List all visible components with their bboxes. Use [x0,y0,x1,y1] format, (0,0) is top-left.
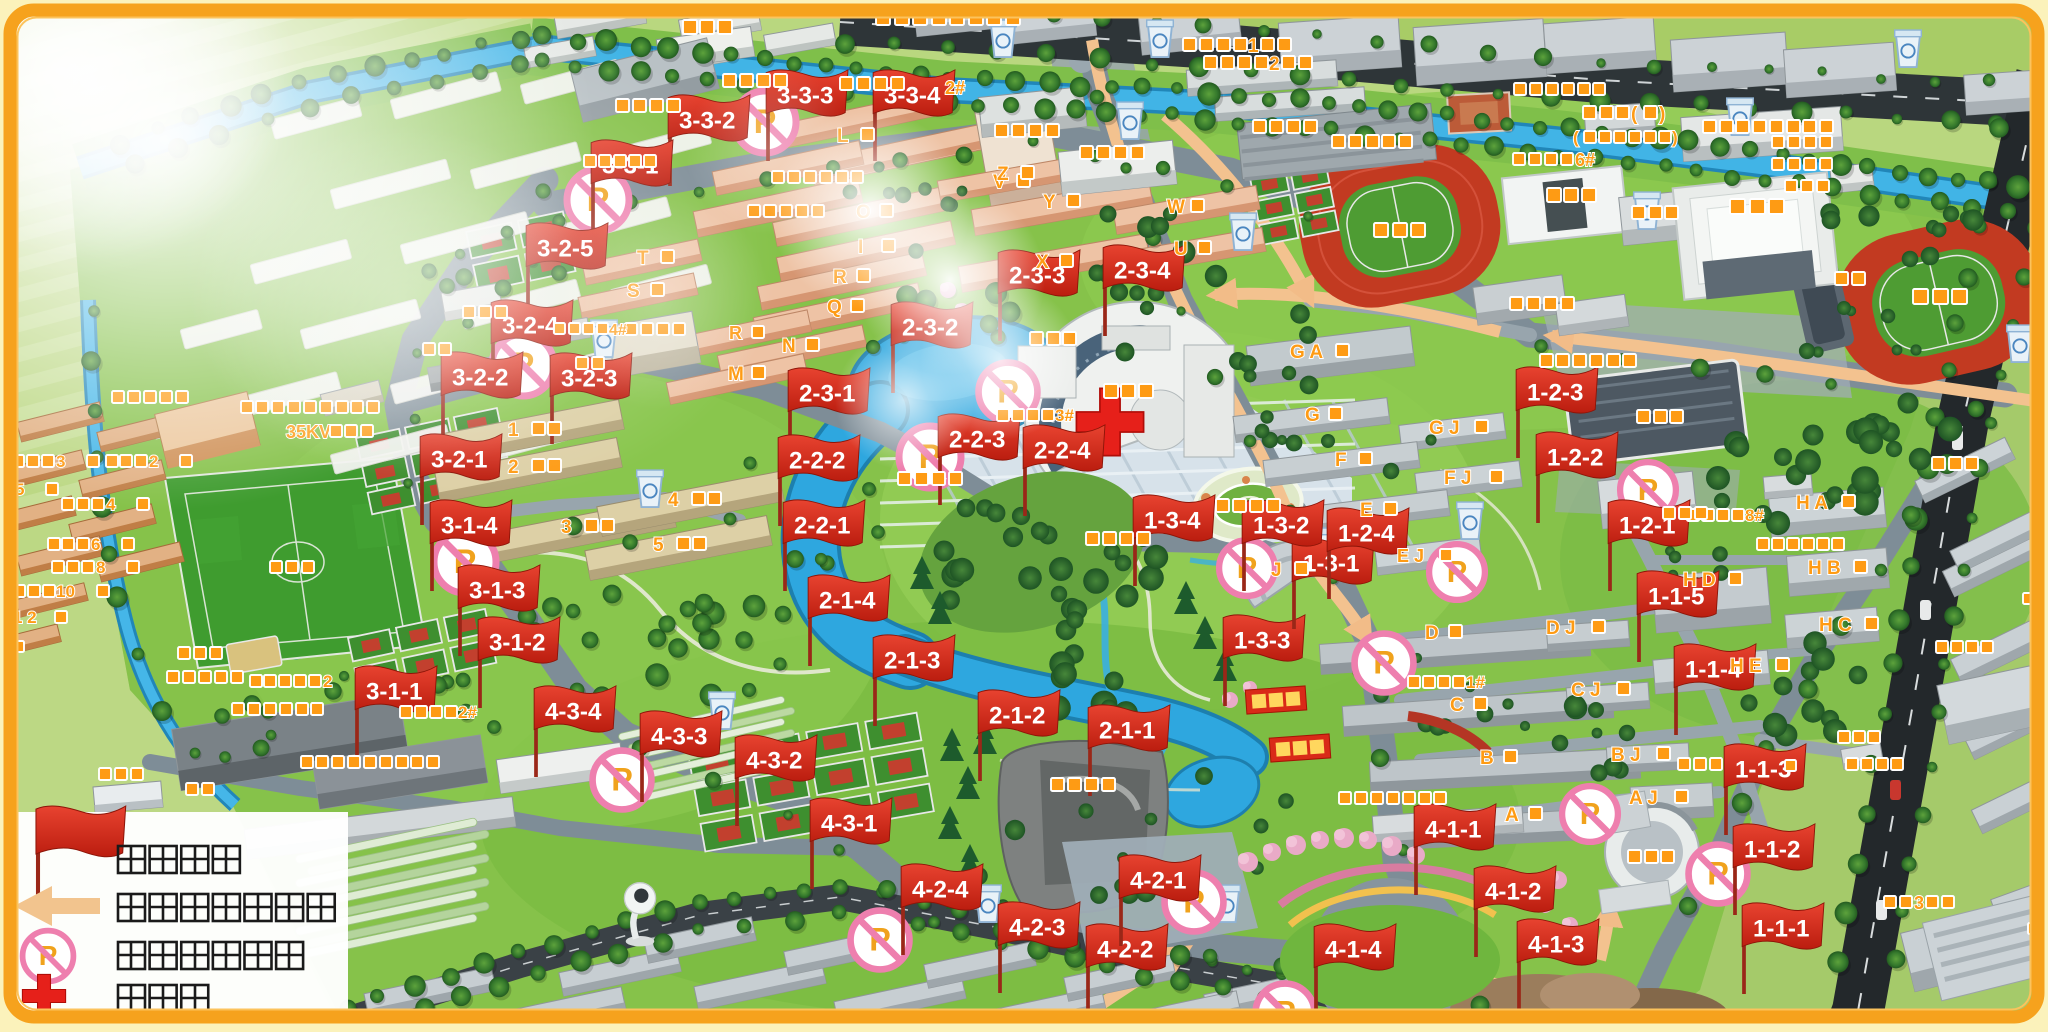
svg-text:(: ( [1573,128,1579,147]
svg-text:B J: B J [1611,745,1641,766]
svg-text:J: J [1271,560,1282,581]
svg-text:H D: H D [1683,570,1716,591]
svg-text:4-3-1: 4-3-1 [821,810,877,837]
svg-text:C: C [1450,695,1464,716]
svg-text:4-1-1: 4-1-1 [1425,816,1481,843]
svg-text:1#: 1# [1466,673,1485,692]
svg-text:4: 4 [668,490,679,511]
svg-text:2-1-4: 2-1-4 [819,587,876,614]
svg-text:H B: H B [1808,558,1841,579]
svg-text:G: G [1305,405,1320,426]
svg-text:2-1-3: 2-1-3 [884,647,940,674]
svg-text:1-3-1: 1-3-1 [1303,550,1359,577]
svg-text:G A: G A [1290,342,1323,363]
svg-text:3-1-3: 3-1-3 [469,577,525,604]
svg-text:2-1-2: 2-1-2 [989,702,1045,729]
svg-text:Y: Y [1043,192,1056,213]
svg-text:F: F [1335,450,1347,471]
svg-text:Z: Z [997,164,1009,185]
svg-text:4-3-4: 4-3-4 [545,698,602,725]
svg-text:1-1-1: 1-1-1 [1753,915,1809,942]
svg-text:4-2-1: 4-2-1 [1130,867,1186,894]
svg-text:2-2-4: 2-2-4 [1034,437,1091,464]
svg-text:U: U [1174,239,1188,260]
svg-text:D: D [1425,623,1439,644]
svg-text:8#: 8# [1745,506,1764,525]
svg-text:6: 6 [91,535,100,554]
svg-text:1-1-2: 1-1-2 [1744,836,1800,863]
svg-text:1-3-3: 1-3-3 [1234,627,1290,654]
svg-text:1-3-4: 1-3-4 [1144,507,1201,534]
svg-text:F J: F J [1444,468,1471,489]
svg-text:1-3-2: 1-3-2 [1253,512,1309,539]
svg-text:10: 10 [56,582,75,601]
svg-text:W: W [1167,197,1185,218]
svg-text:H E: H E [1730,656,1762,677]
svg-text:C J: C J [1571,680,1601,701]
svg-text:E: E [1360,500,1373,521]
svg-text:H A: H A [1796,493,1828,514]
svg-text:3-1-2: 3-1-2 [489,629,545,656]
svg-text:3-1-1: 3-1-1 [366,678,422,705]
svg-text:B: B [1480,748,1494,769]
svg-text:1-2-2: 1-2-2 [1547,444,1603,471]
svg-text:6#: 6# [1575,150,1595,170]
svg-text:N: N [782,336,796,357]
svg-text:D J: D J [1546,618,1576,639]
svg-text:2: 2 [323,672,332,691]
svg-text:4-2-2: 4-2-2 [1097,936,1153,963]
svg-text:4-2-3: 4-2-3 [1009,914,1065,941]
svg-text:E J: E J [1397,546,1424,566]
svg-text:H C: H C [1819,615,1852,636]
svg-text:2#: 2# [458,703,477,722]
svg-text:): ) [1672,128,1678,147]
svg-text:2-1-1: 2-1-1 [1099,717,1155,744]
svg-text:2: 2 [1269,54,1280,75]
svg-text:2#: 2# [945,78,965,98]
svg-text:1-1-3: 1-1-3 [1735,756,1791,783]
svg-text:4-3-3: 4-3-3 [651,723,707,750]
svg-text:4-2-4: 4-2-4 [912,876,969,903]
svg-text:2-2-2: 2-2-2 [789,447,845,474]
svg-text:4-3-2: 4-3-2 [746,747,802,774]
svg-text:3: 3 [1914,893,1924,913]
svg-text:4-1-4: 4-1-4 [1325,936,1382,963]
svg-text:(: ( [1631,104,1638,125]
svg-text:3: 3 [561,517,572,538]
svg-text:G J: G J [1429,418,1460,439]
svg-text:1: 1 [1248,36,1259,57]
svg-text:4-1-3: 4-1-3 [1528,931,1584,958]
svg-text:4-1-2: 4-1-2 [1485,878,1541,905]
svg-text:A: A [1505,805,1519,826]
svg-text:2-3-4: 2-3-4 [1114,257,1171,284]
svg-text:1-2-4: 1-2-4 [1338,520,1395,547]
svg-text:A J: A J [1629,788,1658,809]
svg-text:): ) [1659,104,1665,125]
svg-text:8: 8 [96,558,105,577]
svg-text:5: 5 [653,535,664,556]
svg-text:2-2-1: 2-2-1 [794,512,850,539]
svg-text:3-1-4: 3-1-4 [441,512,498,539]
svg-text:1-2-3: 1-2-3 [1527,379,1583,406]
